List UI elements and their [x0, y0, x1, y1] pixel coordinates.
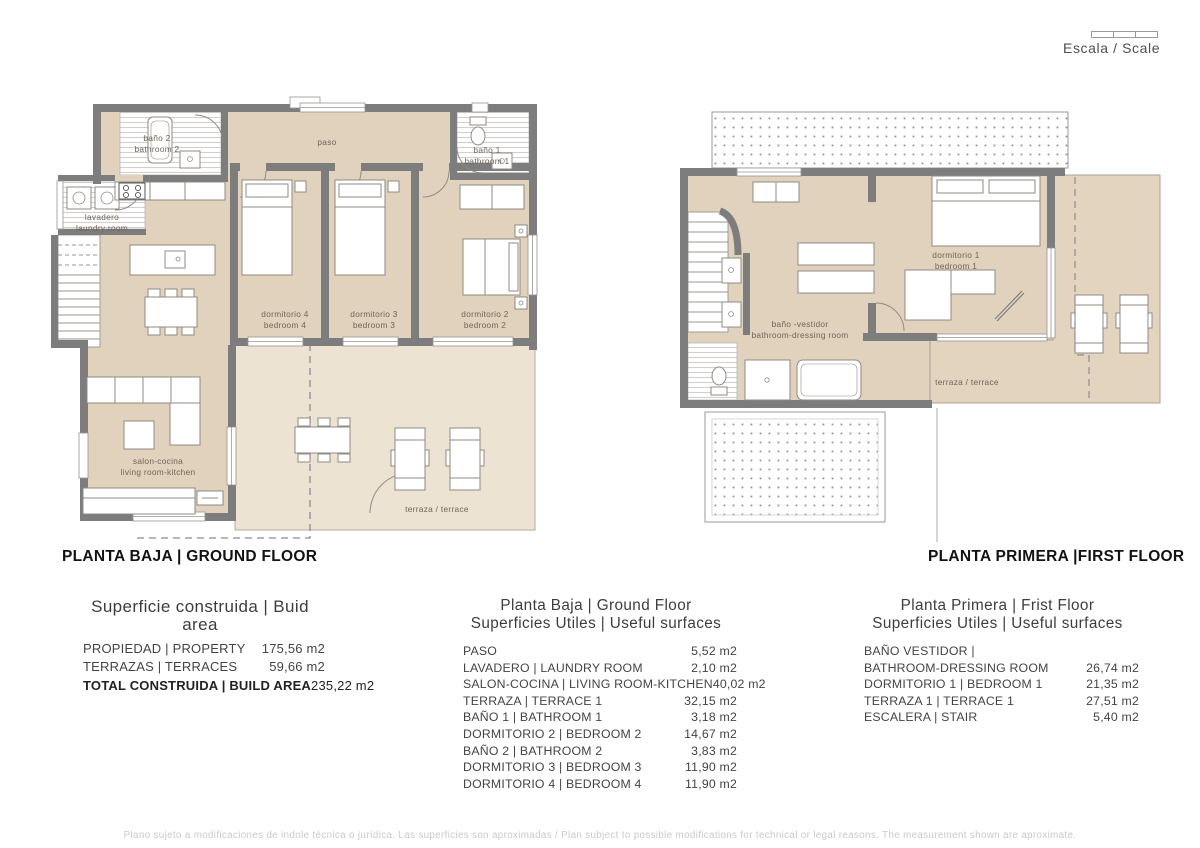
row-label: DORMITORIO 2 | BEDROOM 2 [455, 726, 663, 743]
table-row: TERRAZA 1 | TERRACE 127,51 m2 [856, 693, 1139, 710]
table-row: PROPIEDAD | PROPERTY175,56 m2 [75, 640, 325, 658]
row-value: 2,10 m2 [663, 660, 737, 677]
wardrobe-icon [460, 185, 524, 209]
roof-dotted-area [712, 112, 1068, 168]
row-value: 5,52 m2 [663, 643, 737, 660]
row-value: 5,40 m2 [1065, 709, 1139, 726]
kitchen-island-icon [130, 245, 215, 275]
row-label: DORMITORIO 1 | BEDROOM 1 [856, 676, 1065, 693]
room-label-terraza: terraza / terrace [935, 377, 999, 387]
row-value: 11,90 m2 [663, 776, 737, 793]
row-label: DORMITORIO 3 | BEDROOM 3 [455, 759, 663, 776]
row-label: PROPIEDAD | PROPERTY [75, 640, 251, 658]
stairs-icon [58, 235, 100, 347]
floor-plan-sheet: Escala / Scale [0, 0, 1200, 848]
ground-floor-plan: baño 2 bathroom 2 paso baño 1 bathroom 1… [45, 95, 565, 545]
row-label: TERRAZA | TERRACE 1 [455, 693, 663, 710]
room-label-dorm3: bedroom 3 [353, 320, 395, 330]
room-label-terraza: terraza / terrace [405, 504, 469, 514]
room-label-dorm1: dormitorio 1 [932, 250, 979, 260]
row-label: BAÑO 2 | BATHROOM 2 [455, 743, 663, 760]
room-label-dorm4: bedroom 4 [264, 320, 306, 330]
room-label-dorm2: bedroom 2 [464, 320, 506, 330]
first-floor-plan: dormitorio 1 bedroom 1 baño -vestidor ba… [675, 105, 1165, 545]
row-value: 11,90 m2 [663, 759, 737, 776]
row-label: PASO [455, 643, 663, 660]
row-value: 3,18 m2 [663, 709, 737, 726]
ground-floor-title: PLANTA BAJA | GROUND FLOOR [62, 548, 317, 566]
table-subtitle: Superficies Utiles | Useful surfaces [856, 615, 1139, 633]
row-value: 40,02 m2 [713, 676, 766, 693]
table-title: Planta Baja | Ground Floor [455, 597, 737, 615]
sink-icon [180, 151, 200, 168]
armchair-icon [124, 421, 154, 449]
row-label: BAÑO 1 | BATHROOM 1 [455, 709, 663, 726]
sun-lounger-icon [1071, 295, 1107, 353]
row-label: TOTAL CONSTRUIDA | BUILD AREA [75, 677, 311, 695]
toilet-icon [711, 367, 727, 395]
table-row: DORMITORIO 1 | BEDROOM 121,35 m2 [856, 676, 1139, 693]
room-label-bano2: baño 2 [143, 133, 170, 143]
room-label-salon: salon-cocina [133, 456, 183, 466]
shower-icon [745, 360, 790, 400]
room-label-bano1: bathroom 1 [465, 156, 510, 166]
row-value [1065, 643, 1139, 660]
table-row: TERRAZAS | TERRACES59,66 m2 [75, 658, 325, 676]
room-label-salon: living room-kitchen [121, 467, 196, 477]
row-label: ESCALERA | STAIR [856, 709, 1065, 726]
terrace-floor [235, 345, 535, 530]
room-label-banovestidor: baño -vestidor [772, 319, 829, 329]
kitchen-counter-icon [115, 182, 225, 200]
table-row: PASO5,52 m2 [455, 643, 737, 660]
sun-lounger-icon [446, 428, 484, 490]
built-area-table: Superficie construida | Buid area PROPIE… [75, 598, 325, 695]
row-value: 59,66 m2 [251, 658, 325, 676]
dining-table-icon [145, 289, 197, 335]
row-label: TERRAZAS | TERRACES [75, 658, 251, 676]
table-row: BATHROOM-DRESSING ROOM26,74 m2 [856, 660, 1139, 677]
table-row: DORMITORIO 4 | BEDROOM 411,90 m2 [455, 776, 737, 793]
table-row: BAÑO 1 | BATHROOM 13,18 m2 [455, 709, 737, 726]
room-label-dorm4: dormitorio 4 [261, 309, 308, 319]
outdoor-table-icon [295, 418, 350, 462]
row-label: TERRAZA 1 | TERRACE 1 [856, 693, 1065, 710]
bed-icon [932, 176, 1040, 246]
table-row: TERRAZA | TERRACE 132,15 m2 [455, 693, 737, 710]
table-title: Planta Primera | Frist Floor [856, 597, 1139, 615]
table-row: BAÑO VESTIDOR | [856, 643, 1139, 660]
row-label: LAVADERO | LAUNDRY ROOM [455, 660, 663, 677]
sun-lounger-icon [391, 428, 429, 490]
table-subtitle: Superficies Utiles | Useful surfaces [455, 615, 737, 633]
table-row: ESCALERA | STAIR5,40 m2 [856, 709, 1139, 726]
row-value: 32,15 m2 [663, 693, 737, 710]
room-label-paso: paso [317, 137, 336, 147]
table-row: DORMITORIO 2 | BEDROOM 214,67 m2 [455, 726, 737, 743]
ground-floor-surfaces-table: Planta Baja | Ground Floor Superficies U… [455, 597, 737, 792]
row-value: 26,74 m2 [1065, 660, 1139, 677]
room-label-dorm3: dormitorio 3 [350, 309, 397, 319]
table-row: BAÑO 2 | BATHROOM 23,83 m2 [455, 743, 737, 760]
row-label: BATHROOM-DRESSING ROOM [856, 660, 1065, 677]
scale-label: Escala / Scale [1063, 40, 1160, 56]
sun-lounger-icon [1116, 295, 1152, 353]
row-label: SALON-COCINA | LIVING ROOM-KITCHEN [455, 676, 713, 693]
row-value: 235,22 m2 [311, 677, 374, 695]
scale-bar [1092, 31, 1158, 38]
room-label-dorm1: bedroom 1 [935, 261, 977, 271]
table-row: SALON-COCINA | LIVING ROOM-KITCHEN40,02 … [455, 676, 737, 693]
bathtub-icon [797, 360, 861, 400]
toilet-icon [470, 117, 486, 145]
room-label-lavadero: laundry room [76, 223, 128, 233]
table-row: LAVADERO | LAUNDRY ROOM2,10 m2 [455, 660, 737, 677]
row-label: BAÑO VESTIDOR | [856, 643, 1065, 660]
first-floor-surfaces-table: Planta Primera | Frist Floor Superficies… [856, 597, 1139, 726]
room-label-lavadero: lavadero [85, 212, 119, 222]
roof-lower-dotted-area [705, 412, 885, 522]
row-value: 3,83 m2 [663, 743, 737, 760]
row-value: 27,51 m2 [1065, 693, 1139, 710]
table-title: Superficie construida | Buid area [75, 598, 325, 633]
table-row: DORMITORIO 3 | BEDROOM 311,90 m2 [455, 759, 737, 776]
room-label-banovestidor: bathroom-dressing room [752, 330, 849, 340]
row-value: 14,67 m2 [663, 726, 737, 743]
disclaimer-text: Plano sujeto a modificaciones de indole … [0, 830, 1200, 841]
row-value: 21,35 m2 [1065, 676, 1139, 693]
table-row-total: TOTAL CONSTRUIDA | BUILD AREA235,22 m2 [75, 677, 325, 695]
room-label-dorm2: dormitorio 2 [461, 309, 508, 319]
room-label-bano1: baño 1 [473, 145, 500, 155]
row-label: DORMITORIO 4 | BEDROOM 4 [455, 776, 663, 793]
row-value: 175,56 m2 [251, 640, 325, 658]
first-floor-title: PLANTA PRIMERA |FIRST FLOOR [928, 548, 1184, 566]
room-label-bano2: bathroom 2 [135, 144, 180, 154]
